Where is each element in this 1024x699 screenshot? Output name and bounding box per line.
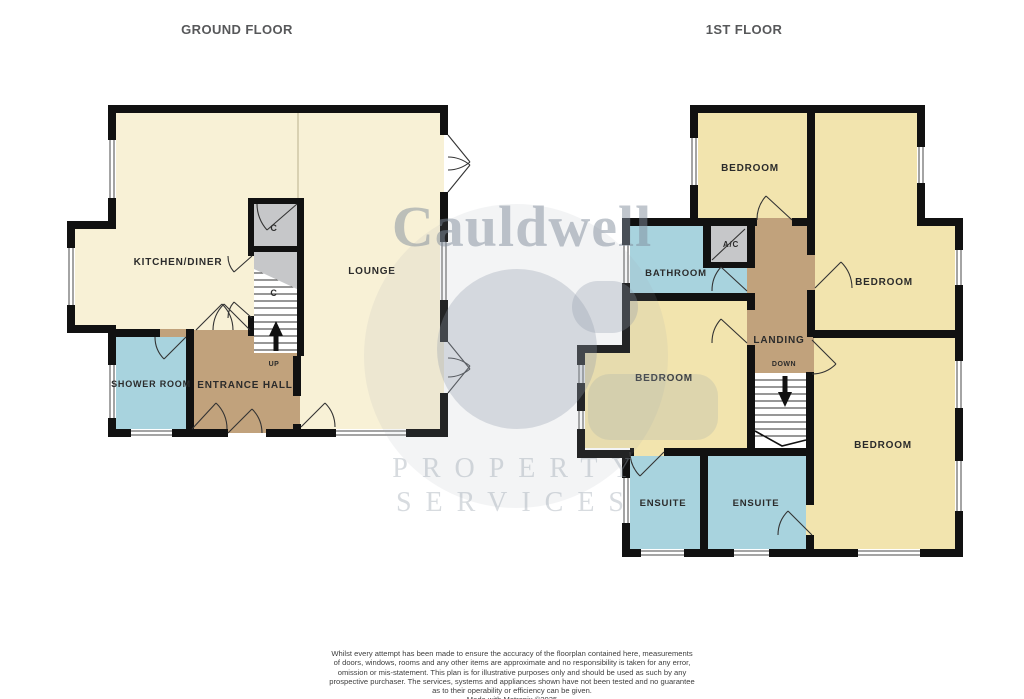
watermark-property-text: PROPERTY [392,453,645,484]
watermark-logo-disc [437,269,597,429]
floorplan-page: GROUND FLOOR 1ST FLOOR [0,0,1024,699]
watermark-brand-text: Cauldwell [392,194,652,259]
disclaimer-line: omission or mis-statement. This plan is … [0,668,1024,677]
up-label: UP [269,361,280,368]
cupboard-understairs-label: C [270,288,277,298]
doorway-bedroom1 [757,218,792,226]
airing-cupboard-label: A/C [723,240,739,249]
kitchen-diner-label: KITCHEN/DINER [134,257,223,268]
room-landing [755,226,807,373]
down-label: DOWN [772,361,796,368]
shower-room-label: SHOWER ROOM [111,379,191,389]
bedroom-top-left-label: BEDROOM [721,163,779,174]
bedroom-right-label: BEDROOM [855,277,913,288]
doorway-bedroom2 [807,255,815,290]
cupboard-top-label: C [270,223,277,233]
disclaimer: Whilst every attempt has been made to en… [0,649,1024,699]
disclaimer-credit: Made with Metropix ©2025 [0,695,1024,699]
ground-floor-stairs [254,252,297,351]
watermark-logo-arm-upper [572,281,638,333]
doorway-bedroom4 [806,337,814,372]
entrance-hall-label: ENTRANCE HALL [197,380,292,391]
watermark-logo-arm-lower [588,374,718,440]
disclaimer-line: Whilst every attempt has been made to en… [0,649,1024,658]
down-arrow-shaft [783,376,788,394]
up-arrow-shaft [274,334,279,351]
shower-doorway-floor [160,329,186,337]
doorway-bathroom [747,266,755,293]
ensuite-right-label: ENSUITE [733,498,780,509]
disclaimer-line: as to their operability or efficiency ca… [0,686,1024,695]
bedroom-bottom-right-label: BEDROOM [854,440,912,451]
ensuite-left-label: ENSUITE [640,498,687,509]
disclaimer-line: prospective purchaser. The services, sys… [0,677,1024,686]
landing-label: LANDING [753,335,804,346]
watermark-services-text: SERVICES [396,487,638,518]
floorplan-drawing: KITCHEN/DINER LOUNGE SHOWER ROOM ENTRANC… [0,0,1024,699]
bathroom-label: BATHROOM [645,268,707,279]
disclaimer-line: of doors, windows, rooms and any other i… [0,658,1024,667]
